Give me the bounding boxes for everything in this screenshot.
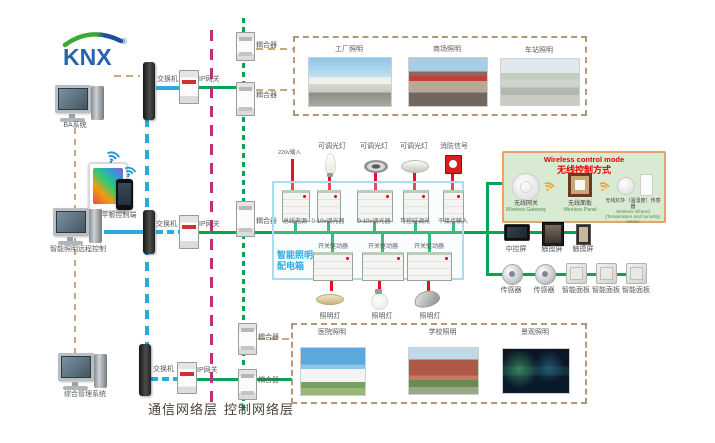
coupler5-label: 耦合器 <box>258 377 279 385</box>
wireless-sensor-label-en: Wireless infrared (Temperature and humid… <box>604 210 662 225</box>
knx-registered: ® <box>121 37 127 46</box>
pc-tower-icon <box>91 86 104 120</box>
switch-actuator-module <box>313 252 353 281</box>
wifi-icon <box>104 148 122 169</box>
wireless-sensor-label: 无线红外（温湿度）传感器 Wireless infrared (Temperat… <box>604 199 662 225</box>
management-system-computer <box>58 353 110 393</box>
bus-power-module <box>282 190 310 222</box>
ceiling-light-icon <box>401 160 429 173</box>
dry-contact-module <box>443 190 464 222</box>
coupler1-label: 耦合器 <box>256 42 277 50</box>
layer-divider-line <box>210 30 213 408</box>
switch2-label: 交换机 <box>156 221 177 229</box>
wifi-icon <box>542 179 556 197</box>
monitor-icon <box>53 208 89 236</box>
switch1-left-dashed-line <box>114 75 140 77</box>
switch3-label: 交换机 <box>153 366 174 374</box>
network-switch-icon <box>139 344 151 396</box>
coupler-icon <box>236 201 255 237</box>
coupler-icon <box>236 32 255 61</box>
smart-panel-icon <box>596 263 617 284</box>
panel-title-line2: 配电箱 <box>277 261 313 272</box>
switch-actuator1-label: 开关驱动器 <box>318 244 348 251</box>
factory-lighting-photo <box>308 57 392 107</box>
management-system-label: 综合管理系统 <box>40 391 130 399</box>
dimmer1-label: 0-10v调光器 <box>308 219 348 226</box>
power-input-label: 220v输入 <box>278 150 301 156</box>
wifi-icon <box>122 164 138 183</box>
wireless-gateway-icon <box>512 173 540 201</box>
scr-dimmer-module <box>403 190 429 222</box>
wireless-panel-label-en: Wireless Panel <box>558 208 602 214</box>
station-lighting-label: 车站照明 <box>500 47 578 55</box>
coupler-icon <box>238 323 257 355</box>
lamp2-label: 照明灯 <box>364 313 400 321</box>
switch-actuator-module <box>362 252 404 281</box>
dimmable-light2-label: 可调光灯 <box>354 143 394 151</box>
pc-tower-icon <box>89 209 102 243</box>
coupler2-label: 耦合器 <box>256 92 277 100</box>
sensor-icon <box>502 264 523 285</box>
smart-panel-icon <box>566 263 587 284</box>
dimmer-module <box>357 190 393 222</box>
switch1-gateway1-link <box>156 86 180 90</box>
lamp1-label: 照明灯 <box>312 313 348 321</box>
network-switch-icon <box>143 62 155 120</box>
school-lighting-photo <box>408 347 479 395</box>
fire-signal-label: 消防信号 <box>434 143 474 151</box>
school-lighting-label: 学校照明 <box>405 329 480 337</box>
knx-logo-art: KNX ® <box>55 28 133 72</box>
pc2-switch2-link <box>104 230 144 234</box>
gateway2-label: IP网关 <box>199 221 220 229</box>
ba-system-label: BA系统 <box>47 122 103 130</box>
smart-panel-icon <box>626 263 647 284</box>
bulb-lamp-icon <box>371 293 388 310</box>
dry-contact-label: 干接点输入 <box>436 219 470 226</box>
wireless-gateway-label-en: Wireless Gateway <box>504 208 548 214</box>
switch-actuator2-label: 开关驱动器 <box>368 244 398 251</box>
coupler4-label: 耦合器 <box>258 334 279 342</box>
coupler-icon <box>236 82 255 116</box>
touch-screen2-label: 触摸屏 <box>566 246 600 254</box>
dimmable-light1-label: 可调光灯 <box>312 143 352 151</box>
switch1-label: 交换机 <box>157 76 178 84</box>
knx-text: KNX <box>63 44 112 70</box>
panel-title: 智能照明 配电箱 <box>277 250 313 273</box>
saucer-lamp-icon <box>316 294 344 305</box>
monitor-icon <box>58 353 94 381</box>
diagram-canvas: KNX ® BA系统 手机平板控制端 智能照明远程控制 <box>0 0 715 443</box>
touch-screen-icon <box>542 222 564 246</box>
hospital-lighting-label: 医院照明 <box>295 329 369 337</box>
switch-actuator-module <box>407 252 452 281</box>
ip-gateway-icon <box>177 362 197 394</box>
wireless-sensor-round-icon <box>617 177 635 195</box>
ip-gateway-icon <box>179 215 199 249</box>
wireless-panel-label: 无线面板 Wireless Panel <box>558 201 602 213</box>
knx-logo: KNX ® <box>55 28 133 72</box>
coupler2-gallery-link <box>256 89 294 91</box>
landscape-lighting-photo <box>502 348 570 394</box>
gateway3-label: IP网关 <box>197 367 218 375</box>
factory-lighting-label: 工厂照明 <box>308 46 390 54</box>
dimmer2-label: 0-10v调光器 <box>352 219 396 226</box>
bulb-lamp-base <box>375 289 382 294</box>
sensor-icon <box>535 264 556 285</box>
central-screen-label: 中控屏 <box>498 246 534 254</box>
communication-layer-label: 通信网络层 <box>148 399 218 418</box>
downlight-icon <box>364 160 388 173</box>
hospital-lighting-photo <box>300 347 366 396</box>
landscape-lighting-label: 景观照明 <box>498 329 572 337</box>
lamp3-label: 照明灯 <box>412 313 448 321</box>
wireless-sensor-label-zh: 无线红外（温湿度）传感器 <box>605 198 660 210</box>
coupler-icon <box>238 369 257 400</box>
right-branch-riser <box>486 182 489 276</box>
candle-bulb-icon <box>325 153 336 175</box>
switch-actuator3-label: 开关驱动器 <box>414 244 444 251</box>
ba-system-computer <box>55 85 107 125</box>
mall-lighting-photo <box>408 57 488 107</box>
fire-alarm-icon <box>445 155 462 174</box>
dimmer-module <box>317 190 341 222</box>
monitor-base <box>58 241 83 245</box>
cone-lamp-icon <box>412 288 441 310</box>
switch3-gateway3-link <box>151 377 178 381</box>
wireless-sensor-rect-icon <box>640 174 653 196</box>
phone-icon <box>116 179 133 210</box>
wireless-gateway-label: 无线网关 Wireless Gateway <box>504 201 548 213</box>
network-switch-icon <box>143 210 155 254</box>
gateway1-label: IP网关 <box>199 76 220 84</box>
ip-gateway-icon <box>179 70 199 104</box>
bulb-base <box>327 173 333 177</box>
control-layer-label: 控制网络层 <box>224 399 294 418</box>
mall-lighting-label: 商场照明 <box>408 46 486 54</box>
touch-screen-icon <box>576 224 591 245</box>
dimmable-light3-label: 可调光灯 <box>394 143 434 151</box>
station-lighting-photo <box>500 58 580 106</box>
wireless-panel-icon <box>568 173 592 197</box>
wifi-icon <box>597 179 611 197</box>
wireless-control-box: Wireless control mode 无线控制方式 无线网关 Wirele… <box>502 151 666 223</box>
switch2-gateway2-link <box>156 230 180 234</box>
scr-dimmer-label: 可控硅调光 <box>398 219 432 226</box>
monitor-icon <box>55 85 91 113</box>
central-screen-icon <box>504 224 530 241</box>
remote-control-label: 智能照明远程控制 <box>28 246 128 254</box>
monitor-base <box>63 386 88 390</box>
remote-control-computer <box>53 208 105 248</box>
pc-tower-icon <box>94 354 107 388</box>
smart-panel3-label: 智能面板 <box>614 287 658 295</box>
panel-title-line1: 智能照明 <box>277 250 313 261</box>
